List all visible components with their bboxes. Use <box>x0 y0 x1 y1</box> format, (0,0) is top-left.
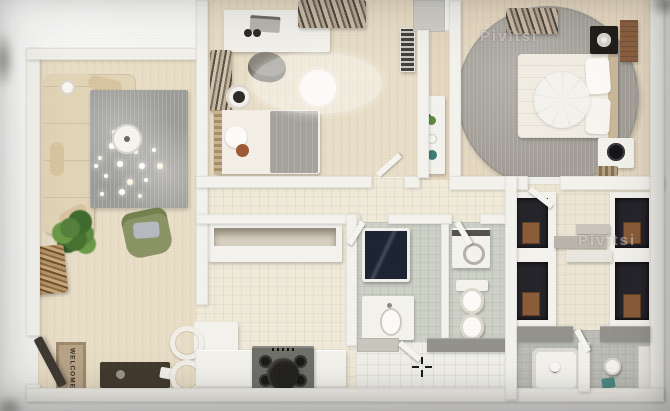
dressing-shelf <box>566 250 612 262</box>
sofa-bolster <box>50 142 64 176</box>
toilet-bowl <box>460 288 484 314</box>
washer-door <box>463 243 485 265</box>
closet-niche <box>514 198 548 248</box>
bench-runner <box>596 166 618 176</box>
round-throw <box>534 72 590 128</box>
crosshair-marker <box>412 357 432 377</box>
cabinet-niche <box>214 228 336 246</box>
bidet <box>460 314 484 340</box>
master-left-wall <box>449 0 461 178</box>
closet-niche <box>615 262 649 320</box>
entry-console <box>100 362 170 388</box>
radiator <box>400 28 415 72</box>
bath-stool <box>604 358 621 375</box>
sink <box>380 308 402 336</box>
armchair-pillow <box>133 221 160 239</box>
kids-toy <box>236 144 249 157</box>
bath-south-wall-light <box>357 338 399 352</box>
shower-unit <box>362 228 410 282</box>
crosshair-dash <box>421 370 423 377</box>
outer-wall-right <box>650 0 664 400</box>
speaker-ring <box>597 33 611 47</box>
watermark: Pivitsi <box>480 28 538 45</box>
kids-bedroom <box>205 0 417 177</box>
floor-plan-photo: WELCOME <box>0 0 670 411</box>
dressing-bath2-wall-a <box>517 326 573 342</box>
storage-box <box>522 292 540 316</box>
potted-plant <box>60 218 80 238</box>
photo-smudge <box>0 30 14 90</box>
coffee-table-tray <box>124 136 130 142</box>
washing-machine <box>452 228 490 268</box>
console-item <box>116 370 125 379</box>
closet-niche <box>514 262 548 320</box>
side-table <box>226 84 252 110</box>
living-top-wall <box>26 48 206 60</box>
canopy <box>252 52 382 114</box>
kids-bottom-wall-a <box>196 176 372 188</box>
faucet <box>387 303 392 308</box>
headphones <box>244 29 252 37</box>
outer-wall-left-upper <box>26 48 40 336</box>
outer-wall-bottom <box>26 388 664 402</box>
corridor-south-wall-a <box>196 214 360 224</box>
crosshair-dash <box>421 357 423 364</box>
stove-knobs <box>272 348 294 351</box>
photo-smudge <box>0 396 24 411</box>
green-armchair <box>120 206 175 261</box>
storage-box <box>522 222 540 244</box>
watermark: Pivitsi <box>578 232 636 249</box>
pillow <box>585 57 611 95</box>
crosshair-dash <box>425 366 432 368</box>
living-rug <box>90 90 188 208</box>
kids-blanket <box>270 111 318 173</box>
crosshair-dash <box>412 366 419 368</box>
kids-headboard <box>214 110 222 174</box>
bath-kettle <box>550 362 560 372</box>
corridor-south-wall-b <box>388 214 452 224</box>
bath-south-wall-dark <box>427 338 516 352</box>
dressing-bath2-wall-b <box>600 326 650 342</box>
coffee-table <box>112 124 142 154</box>
living-middle-wall <box>196 0 208 305</box>
hall-dressing-wall <box>505 176 517 400</box>
doormat-text: WELCOME <box>68 348 75 389</box>
bath-wc-wall <box>441 224 449 344</box>
storage-box <box>623 294 641 318</box>
master-bottom-wall-b <box>560 176 664 190</box>
table-lamp <box>607 143 625 161</box>
kitchen-tall-cabinet <box>208 224 342 262</box>
kids-right-wall <box>417 30 429 178</box>
cooking-pot <box>267 358 299 390</box>
sofa-side-lamp <box>60 80 75 95</box>
wall-block-top <box>413 0 445 32</box>
master-bedroom <box>455 0 651 177</box>
kids-wardrobe-clothes <box>298 0 366 28</box>
laptop <box>249 15 280 33</box>
bath-vanity <box>362 296 414 340</box>
wood-panel <box>620 20 638 62</box>
side-table-tray <box>233 91 245 103</box>
